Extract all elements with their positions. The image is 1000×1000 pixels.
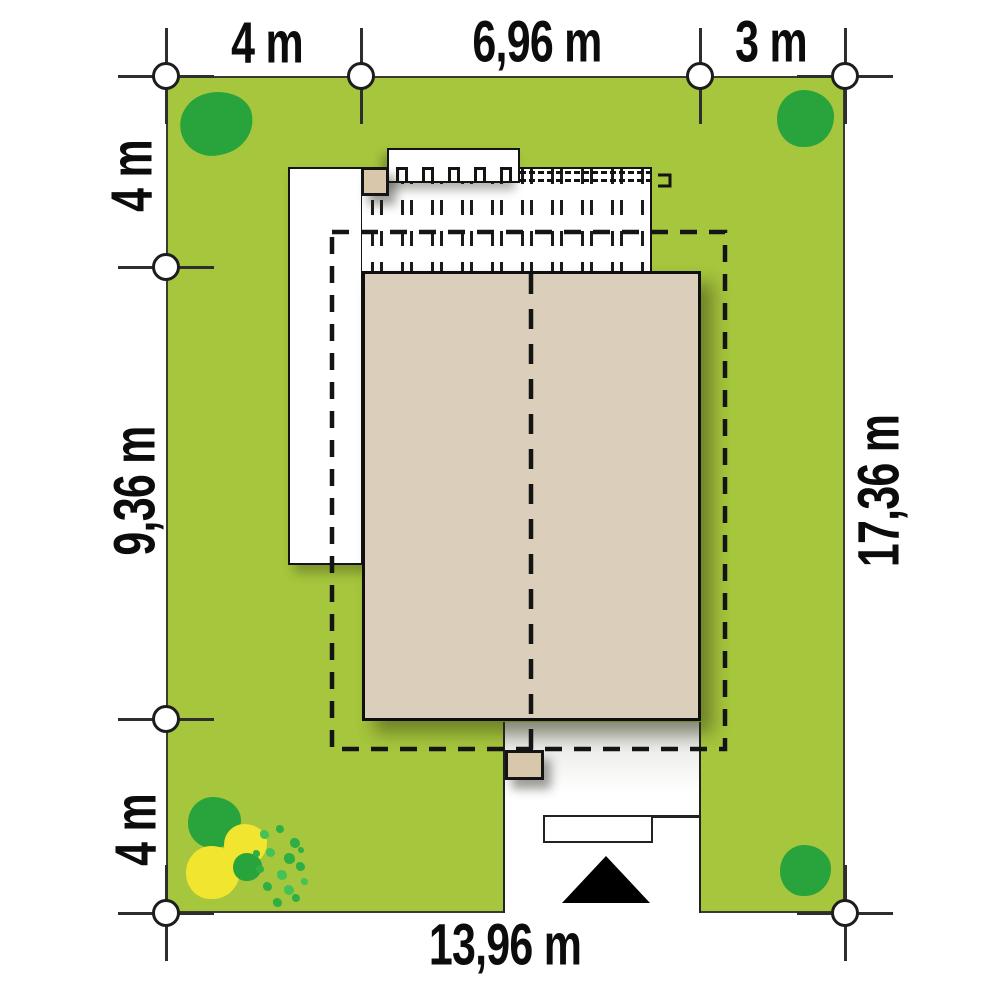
chimney: [361, 167, 389, 196]
dimension-label-left-middle: 9,36 m: [102, 426, 169, 555]
terrace: [288, 167, 363, 565]
dimension-label-top-center: 6,96 m: [472, 9, 601, 76]
dimension-label-left-bottom: 4 m: [103, 794, 170, 866]
site-plan: 4 m 6,96 m 3 m 4 m 9,36 m 4 m 17,36 m 13…: [0, 0, 1000, 1000]
dimension-label-top-right: 3 m: [735, 9, 807, 76]
entrance-step: [543, 815, 653, 843]
dimension-label-right: 17,36 m: [846, 415, 913, 567]
chimney: [505, 750, 544, 780]
shrub-symbol: [250, 822, 310, 906]
pergola-beam-line: [520, 171, 652, 182]
dimension-label-bottom: 13,96 m: [429, 912, 581, 979]
dimension-label-left-top: 4 m: [99, 140, 166, 212]
house-roof: [362, 271, 701, 721]
entrance-canopy: [387, 148, 520, 183]
dimension-label-top-left: 4 m: [231, 10, 303, 77]
